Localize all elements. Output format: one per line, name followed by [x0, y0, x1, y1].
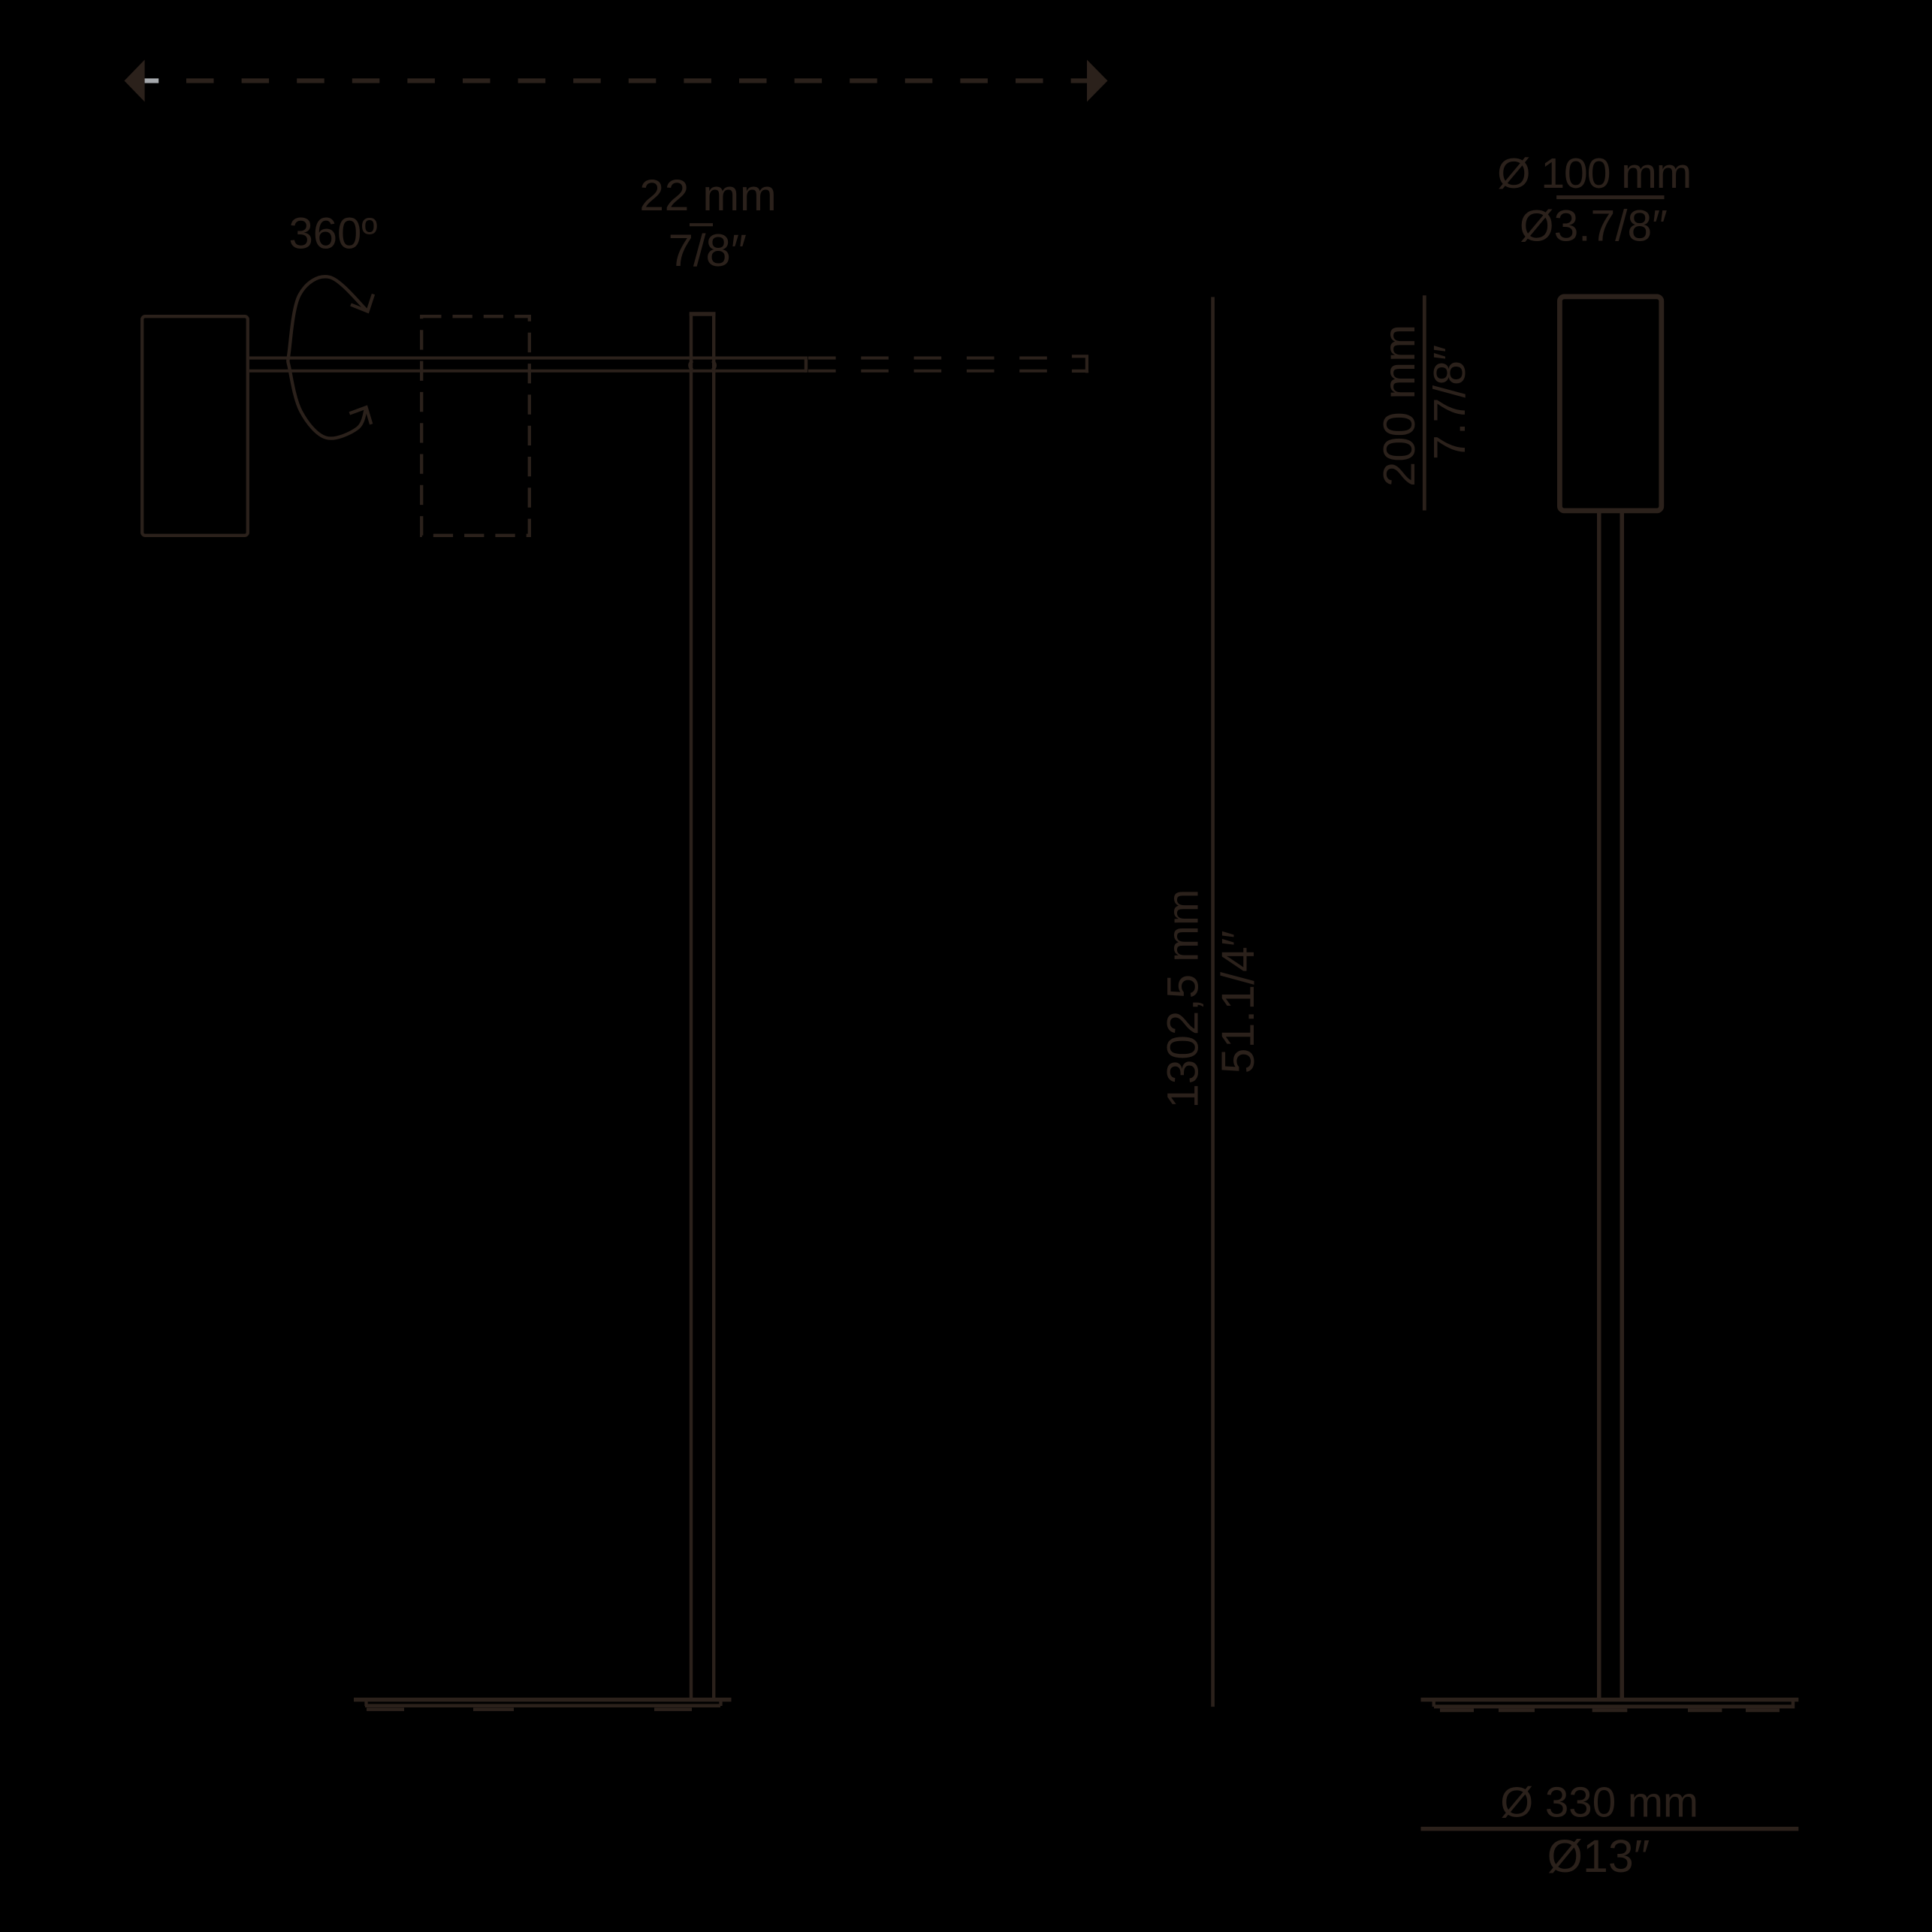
svg-text:Ø3.7/8″: Ø3.7/8″ [1520, 202, 1668, 251]
svg-text:200 mm: 200 mm [1374, 325, 1424, 487]
svg-text:1302,5 mm: 1302,5 mm [1159, 889, 1208, 1108]
svg-text:Ø13″: Ø13″ [1547, 1831, 1650, 1882]
svg-text:360º: 360º [289, 210, 378, 258]
svg-text:51.1/4″: 51.1/4″ [1212, 931, 1263, 1074]
svg-text:Ø 330 mm: Ø 330 mm [1500, 1778, 1698, 1825]
svg-text:7/8″: 7/8″ [669, 225, 747, 276]
svg-text:Ø 100 mm: Ø 100 mm [1497, 149, 1691, 198]
svg-text:22 mm: 22 mm [639, 171, 777, 220]
svg-text:7.7/8″: 7.7/8″ [1424, 345, 1475, 460]
